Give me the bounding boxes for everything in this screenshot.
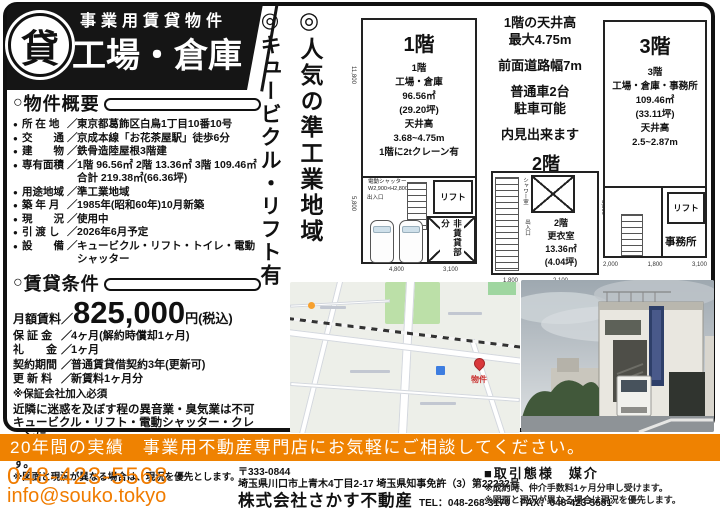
spec-label: 引 渡 し	[22, 226, 67, 240]
dimension-left-top: 11,800	[350, 66, 356, 84]
spec-value: 2026年6月予定	[77, 226, 261, 240]
rent-value: 1ヶ月	[71, 343, 261, 358]
rent-heading-label: 賃貸条件	[24, 270, 100, 296]
shutter-label: 電動シャッター W2,900×H2,800	[368, 179, 408, 192]
bullet-icon: ●	[13, 159, 22, 186]
slash-separator: ／	[67, 145, 77, 159]
floorplan-1f-outline: 1階 1階 工場・倉庫 96.56㎡ (29.20坪) 天井高 3.68~4.7…	[361, 18, 477, 264]
spec-label: 所 在 地	[22, 118, 67, 132]
map-park	[488, 282, 516, 295]
bullet-icon: ●	[13, 199, 22, 213]
monthly-rent-unit: 円(税込)	[185, 308, 233, 327]
rent-row: 保 証 金 ／ 4ヶ月(解約時償却1ヶ月)	[13, 329, 261, 344]
dimension-bottom-left: 4,800	[389, 267, 404, 273]
rent-row: 更 新 料 ／ 新賃料1ヶ月分	[13, 372, 261, 387]
spec-row: ● 築 年 月 ／ 1985年(昭和60年)10月新築	[13, 199, 261, 213]
circle-icon: ○	[13, 274, 23, 292]
slash-separator: ／	[67, 226, 77, 240]
property-panel: ○ 物件概要 ● 所 在 地 ／ 東京都葛飾区白鳥1丁目10番10号 ● 交 通…	[13, 90, 261, 484]
car-icon	[399, 220, 423, 263]
property-photo	[521, 280, 714, 432]
spec-value: キュービクル・リフト・トイレ・電動シャッター	[77, 240, 261, 267]
spec-label: 築 年 月	[22, 199, 67, 213]
spec-value: 1階 96.56㎡ 2階 13.36㎡ 3階 109.46㎡ 合計 219.38…	[77, 159, 261, 186]
overview-heading-label: 物件概要	[24, 90, 100, 116]
center-note: 1階の天井高 最大4.75m	[483, 14, 597, 48]
rent-row: 契約期間 ／ 普通賃貸借契約3年(更新可)	[13, 358, 261, 373]
heading-pill	[104, 98, 261, 111]
rent-row: 礼 金 ／ 1ヶ月	[13, 343, 261, 358]
slash-separator: ／	[61, 329, 71, 344]
bullet-icon: ●	[13, 213, 22, 227]
circle-icon: ○	[13, 94, 23, 112]
slash-separator: ／	[67, 118, 77, 132]
floorplan-2f: 2階 シャワー室 出入口 2階 更衣室 13.36㎡ (4.04坪) 1,800…	[487, 150, 605, 290]
car-windshield	[373, 226, 391, 233]
property-photo-art	[521, 280, 714, 432]
slash-separator: ／	[67, 159, 77, 186]
spec-value: 使用中	[77, 213, 261, 227]
overview-list: ● 所 在 地 ／ 東京都葛飾区白鳥1丁目10番10号 ● 交 通 ／ 京成本線…	[13, 118, 261, 267]
rent-value: 4ヶ月(解約時償却1ヶ月)	[71, 329, 261, 344]
floorplan-2f-outline: シャワー室 出入口 2階 更衣室 13.36㎡ (4.04坪)	[491, 171, 599, 275]
center-note: 前面道路幅7m	[483, 57, 597, 74]
page-title: 工場・倉庫	[72, 28, 242, 77]
lift-label: リフト	[673, 202, 699, 214]
spec-value: 京成本線「お花茶屋駅」徒歩6分	[77, 132, 261, 146]
rent-value: 新賃料1ヶ月分	[71, 372, 261, 387]
company-name: 株式会社さかす不動産	[238, 487, 413, 508]
spec-row: ● 現 況 ／ 使用中	[13, 213, 261, 227]
floorplan-1f-title: 1階	[363, 28, 475, 57]
catch-copy-cubicle: ◎キュービクル・リフト有	[254, 8, 284, 287]
flyer-page: 事業用賃貸物件 工場・倉庫 貸 ○ 物件概要 ● 所 在 地 ／ 東京都葛飾区白…	[0, 0, 720, 508]
map-label-placeholder	[420, 402, 456, 405]
slash-separator: ／	[67, 213, 77, 227]
monthly-rent-amount: 825,000	[73, 298, 185, 328]
rent-label: 更 新 料	[13, 372, 61, 387]
spec-label: 用途地域	[22, 186, 67, 200]
wall-line	[661, 186, 663, 256]
car-icon	[370, 220, 394, 263]
non-rental-area: 非賃貸部分	[427, 216, 476, 263]
slash-separator: ／	[67, 199, 77, 213]
spec-value: 東京都葛飾区白鳥1丁目10番10号	[77, 118, 261, 132]
bullet-icon: ●	[13, 118, 22, 132]
spec-value: 1985年(昭和60年)10月新築	[77, 199, 261, 213]
monthly-rent: 月額賃料／ 825,000 円(税込)	[13, 298, 261, 328]
spec-row: ● 用途地域 ／ 準工業地域	[13, 186, 261, 200]
entrance-label: 出入口	[367, 195, 384, 202]
spec-row: ● 引 渡 し ／ 2026年6月予定	[13, 226, 261, 240]
catch-copy-zone: ◎人気の準工業地域	[293, 8, 327, 287]
rent-label: 契約期間	[13, 358, 61, 373]
dimension-bottom-right: 3,100	[443, 267, 458, 273]
bullet-icon: ●	[13, 240, 22, 267]
kashi-logo-char: 貸	[21, 18, 59, 73]
lift-label: リフト	[440, 191, 466, 203]
bullet-icon: ●	[13, 145, 22, 159]
dimensions-bottom: 2,0001,8003,100	[603, 262, 707, 268]
floorplan-1f-info: 1階 工場・倉庫 96.56㎡ (29.20坪) 天井高 3.68~4.75m …	[363, 62, 475, 160]
center-note: 内見出来ます	[483, 126, 597, 143]
map-station-icon	[436, 366, 445, 375]
wall-line	[605, 186, 705, 188]
spec-row: ● 建 物 ／ 鉄骨造陸屋根3階建	[13, 145, 261, 159]
dimension-left-bottom: 5,800	[350, 196, 356, 211]
deal-note-2: ※図面と現況が異なる場合は現況を優先します。	[484, 493, 681, 506]
wall-line	[363, 176, 475, 178]
slash-separator: ／	[61, 372, 71, 387]
floorplan-3f-outline: 3階 3階 工場・倉庫・事務所 109.46㎡ (33.11坪) 天井高 2.5…	[603, 20, 707, 258]
overview-heading: ○ 物件概要	[13, 90, 261, 116]
stairs	[621, 214, 643, 256]
floorplan-1f: 1階 1階 工場・倉庫 96.56㎡ (29.20坪) 天井高 3.68~4.7…	[347, 6, 483, 278]
rent-list: 保 証 金 ／ 4ヶ月(解約時償却1ヶ月) 礼 金 ／ 1ヶ月 契約期間 ／ 普…	[13, 329, 261, 387]
guarantor-note: ※保証会社加入必須	[13, 388, 261, 401]
spec-label: 専有面積	[22, 159, 67, 186]
stairs	[495, 177, 519, 271]
slash-separator: ／	[61, 343, 71, 358]
spec-row: ● 所 在 地 ／ 東京都葛飾区白鳥1丁目10番10号	[13, 118, 261, 132]
floorplan-3f-info: 3階 工場・倉庫・事務所 109.46㎡ (33.11坪) 天井高 2.5~2.…	[605, 66, 705, 150]
dimension: 3,100	[692, 262, 707, 268]
spec-row: ● 設 備 ／ キュービクル・リフト・トイレ・電動シャッター	[13, 240, 261, 267]
bullet-icon: ●	[13, 132, 22, 146]
dimension: 2,000	[603, 262, 618, 268]
footer-banner: 20年間の実績 事業用不動産専門店にお気軽にご相談してください。	[0, 434, 720, 461]
slash-separator: ／	[67, 186, 77, 200]
spec-label: 交 通	[22, 132, 67, 146]
spec-value: 鉄骨造陸屋根3階建	[77, 145, 261, 159]
kashi-logo: 貸	[8, 13, 72, 77]
shower-room-label: シャワー室	[521, 177, 529, 205]
spec-label: 現 況	[22, 213, 67, 227]
email-address: info@souko.tokyo	[7, 485, 166, 508]
crossed-area	[531, 175, 575, 213]
rent-value: 普通賃貸借契約3年(更新可)	[71, 358, 261, 373]
map-label-placeholder	[448, 312, 482, 315]
spec-row: ● 交 通 ／ 京成本線「お花茶屋駅」徒歩6分	[13, 132, 261, 146]
rent-heading: ○ 賃貸条件	[13, 270, 261, 296]
location-map: 物件	[290, 282, 520, 433]
lift-box: リフト	[433, 180, 473, 214]
floorplan-3f-title: 3階	[605, 30, 705, 59]
office-label: 事務所	[665, 234, 697, 249]
spec-value: 準工業地域	[77, 186, 261, 200]
map-label-placeholder	[350, 370, 390, 373]
catch-copy: ◎キュービクル・リフト有 ◎人気の準工業地域	[254, 8, 327, 287]
slash-separator: ／	[67, 240, 77, 267]
spec-row: ● 専有面積 ／ 1階 96.56㎡ 2階 13.36㎡ 3階 109.46㎡ …	[13, 159, 261, 186]
lift-box: リフト	[667, 192, 705, 224]
heading-pill	[104, 278, 261, 291]
bullet-icon: ●	[13, 226, 22, 240]
dimension: 1,800	[647, 262, 662, 268]
non-rental-label: 非賃貸部分	[440, 218, 464, 261]
property-pin-label: 物件	[471, 374, 487, 385]
rent-label: 保 証 金	[13, 329, 61, 344]
car-windshield	[402, 226, 420, 233]
map-label-placeholder	[320, 306, 346, 309]
spec-label: 建 物	[22, 145, 67, 159]
center-note: 普通車2台 駐車可能	[483, 83, 597, 117]
deal-type: ■取引態様 媒介	[484, 463, 599, 482]
slash-separator: ／	[67, 132, 77, 146]
bullet-icon: ●	[13, 186, 22, 200]
slash-separator: ／	[61, 358, 71, 373]
floorplan-3f: 3階 3階 工場・倉庫・事務所 109.46㎡ (33.11坪) 天井高 2.5…	[601, 6, 713, 278]
monthly-rent-label: 月額賃料／	[13, 310, 73, 327]
center-notes: 1階の天井高 最大4.75m 前面道路幅7m 普通車2台 駐車可能 内見出来ます	[483, 14, 597, 152]
floorplan-2f-info: 2階 更衣室 13.36㎡ (4.04坪)	[527, 217, 595, 269]
map-poi-icon	[308, 302, 315, 309]
rent-label: 礼 金	[13, 343, 61, 358]
spec-label: 設 備	[22, 240, 67, 267]
